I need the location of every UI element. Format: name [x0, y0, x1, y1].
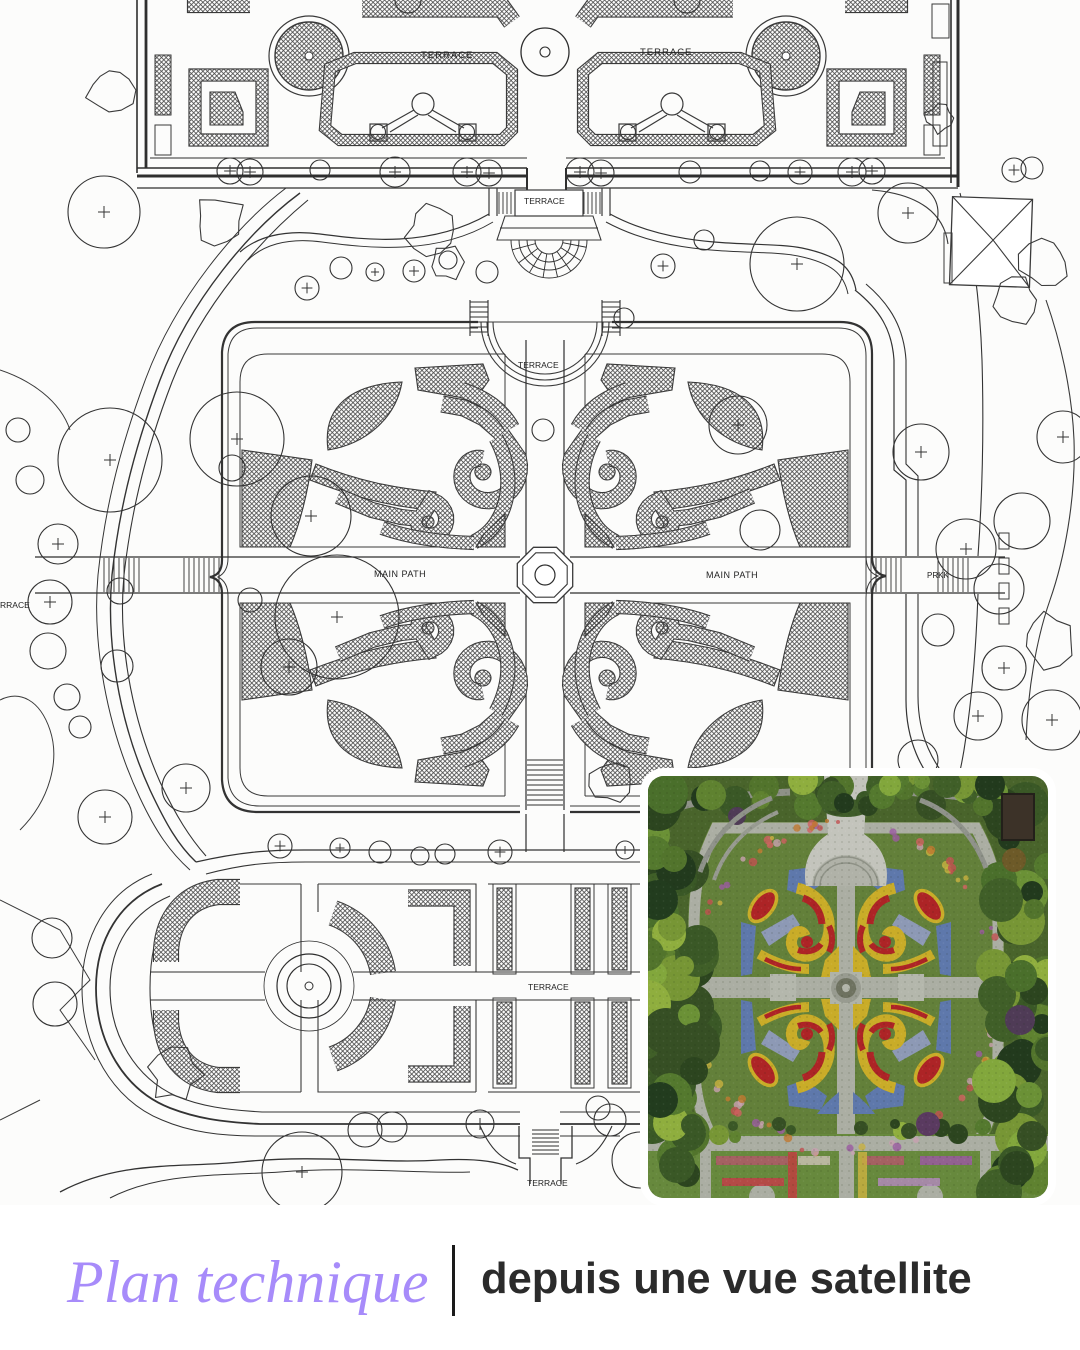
svg-text:TERRACE: TERRACE	[528, 982, 569, 992]
svg-text:PRKK: PRKK	[927, 571, 949, 580]
svg-text:TERRACE: TERRACE	[527, 1178, 568, 1188]
svg-text:TERRACE: TERRACE	[421, 50, 473, 61]
svg-text:TERRACE: TERRACE	[518, 360, 559, 370]
svg-text:TERRACE: TERRACE	[640, 47, 692, 58]
svg-text:RRACE: RRACE	[0, 600, 30, 610]
svg-text:MAIN PATH: MAIN PATH	[706, 570, 758, 580]
svg-text:TERRACE: TERRACE	[524, 196, 565, 206]
